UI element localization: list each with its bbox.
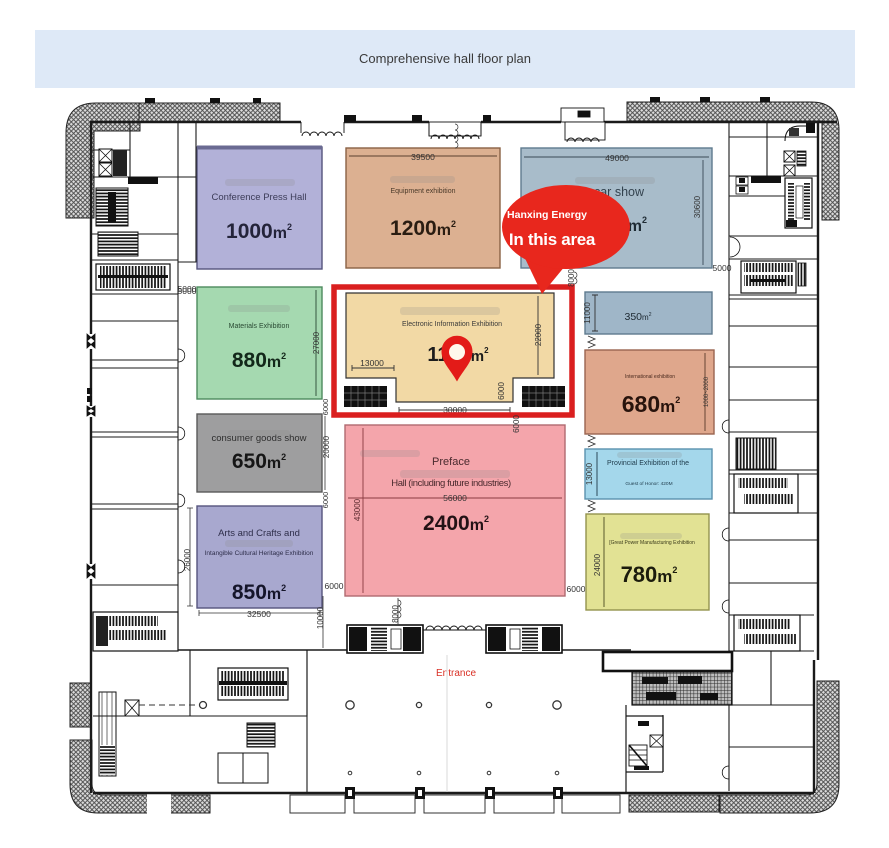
svg-text:Arts and Crafts and: Arts and Crafts and: [218, 528, 300, 539]
svg-text:43000: 43000: [353, 498, 362, 521]
svg-text:Hall (including future industr: Hall (including future industries): [391, 478, 511, 489]
svg-text:32500: 32500: [247, 609, 271, 619]
svg-text:56000: 56000: [443, 493, 467, 503]
svg-text:5000: 5000: [178, 286, 197, 296]
svg-text:49000: 49000: [605, 153, 629, 163]
svg-text:Provincial Exhibition of the: Provincial Exhibition of the: [607, 460, 689, 467]
svg-text:10000: 10000: [316, 606, 325, 629]
svg-text:27000: 27000: [312, 331, 321, 354]
svg-text:1000~2000: 1000~2000: [704, 376, 710, 407]
svg-text:Equipment exhibition: Equipment exhibition: [391, 188, 456, 195]
svg-text:6000: 6000: [497, 382, 506, 400]
svg-text:Conference Press Hall: Conference Press Hall: [211, 192, 306, 203]
svg-text:6000: 6000: [321, 492, 330, 509]
svg-text:International exhibition: International exhibition: [625, 374, 675, 380]
svg-text:6000: 6000: [512, 415, 521, 433]
svg-text:Hanxing Energy: Hanxing Energy: [507, 209, 587, 221]
svg-text:22000: 22000: [534, 323, 543, 346]
svg-text:39500: 39500: [411, 152, 435, 162]
svg-text:11000: 11000: [583, 302, 592, 324]
svg-text:6000: 6000: [321, 399, 330, 416]
svg-text:8000: 8000: [391, 605, 400, 623]
svg-text:13000: 13000: [585, 462, 594, 485]
svg-text:Materials Exhibition: Materials Exhibition: [229, 323, 290, 330]
svg-text:Electronic Information Exhibit: Electronic Information Exhibition: [402, 321, 502, 328]
svg-text:6000: 6000: [567, 584, 586, 594]
svg-text:20000: 20000: [322, 435, 331, 458]
svg-text:24000: 24000: [593, 553, 602, 576]
svg-text:Preface: Preface: [432, 456, 470, 468]
svg-text:Entrance: Entrance: [436, 668, 476, 679]
svg-text:Intangible Cultural Heritage E: Intangible Cultural Heritage Exhibition: [205, 550, 314, 557]
svg-text:Comprehensive hall floor plan: Comprehensive hall floor plan: [359, 51, 531, 66]
svg-text:30600: 30600: [693, 195, 702, 218]
svg-text:In this area: In this area: [509, 230, 596, 249]
svg-text:13000: 13000: [360, 358, 384, 368]
svg-text:Guest of Honor: 420M: Guest of Honor: 420M: [625, 481, 672, 487]
svg-text:350m2: 350m2: [625, 311, 652, 323]
svg-text:[Great Power Manufacturing Exh: [Great Power Manufacturing Exhibition: [609, 540, 695, 546]
svg-text:6000: 6000: [325, 581, 344, 591]
